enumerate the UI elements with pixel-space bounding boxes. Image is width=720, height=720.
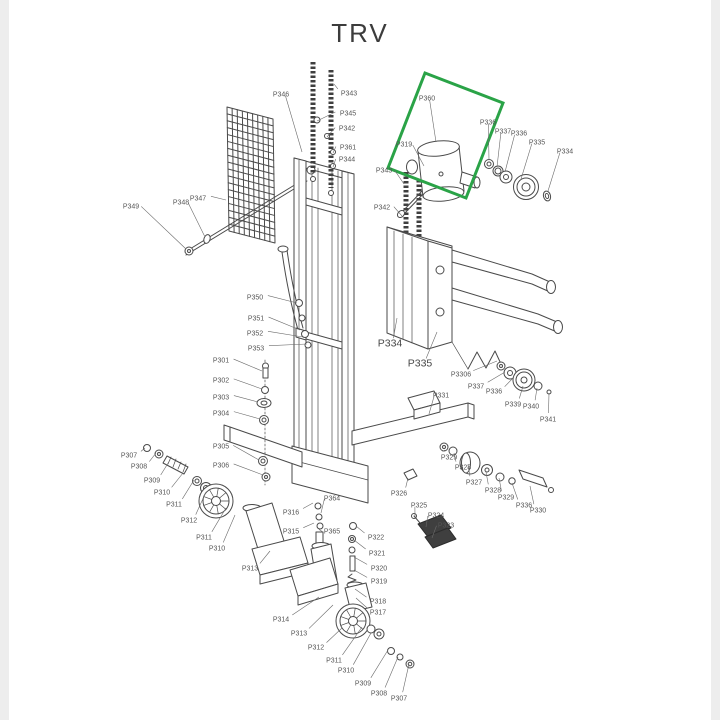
part-label: P308 [131,464,147,471]
part-label: P315 [283,529,299,536]
leader-line [303,503,313,508]
part-label: P336 [511,131,527,138]
part-label: P339 [505,402,521,409]
part-label: P336 [480,120,496,127]
part-label: P349 [123,204,139,211]
part-label: P323 [438,523,454,530]
leader-line [403,664,409,692]
part-label: P328 [485,488,501,495]
leader-line [354,557,367,564]
part-label: P347 [190,196,206,203]
leader-line [530,486,534,504]
part-label: P327 [466,480,482,487]
part-label: P310 [338,668,354,675]
leader-line [268,296,297,303]
exploded-parts-diagram: P343P345P342P361P344P346P347P348P349P343… [0,0,720,720]
part-label: P306 [213,463,229,470]
part-label: P325 [411,503,427,510]
part-label: P317 [370,610,386,617]
part-label: P312 [308,645,324,652]
leader-line [182,480,194,499]
part-label: P305 [213,444,229,451]
part-label: P319 [396,142,412,149]
part-label: P343 [341,91,357,98]
part-label: P361 [340,145,356,152]
leader-line [356,526,365,533]
part-label: P344 [339,157,355,164]
leader-line [141,206,186,249]
leader-line [285,96,302,152]
part-label: P360 [419,96,435,103]
part-label: P311 [166,502,182,509]
leader-line [430,100,436,142]
part-label: P307 [391,696,407,703]
part-label: P309 [355,681,371,688]
leader-line [548,153,560,191]
tie-rod [185,178,307,255]
leader-line [223,515,235,542]
leader-line [188,203,205,237]
part-label: P365 [324,529,340,536]
part-label: P320 [371,566,387,573]
part-label: P304 [213,411,229,418]
backrest-grid [227,107,275,243]
forks [452,250,563,369]
part-label: P303 [213,395,229,402]
steer-wheel-assembly [290,503,414,668]
leader-line [234,412,260,419]
part-label: P353 [248,346,264,353]
leader-line [303,523,314,528]
part-label: P364 [324,496,340,503]
leader-line [406,478,408,488]
part-label: P311 [196,535,212,542]
leader-line [371,650,388,678]
leader-line [172,473,183,487]
part-label: P302 [213,378,229,385]
part-label: P330 [530,508,546,515]
part-label: P342 [339,126,355,133]
part-label: P309 [144,478,160,485]
part-label: P336 [486,389,502,396]
fork-carriage [387,227,452,349]
part-label: P343 [376,168,392,175]
part-label: P331 [433,393,449,400]
part-label: P324 [428,513,444,520]
part-label: P341 [540,417,556,424]
part-label: P334 [557,149,573,156]
part-label: P351 [248,316,264,323]
part-label: P346 [273,92,289,99]
part-label: P308 [371,691,387,698]
part-label: P311 [326,658,342,665]
part-label: P335 [408,358,433,370]
part-label: P310 [154,490,170,497]
part-label: P335 [529,140,545,147]
leader-line [505,135,515,172]
mast-bolt-parts [257,360,271,485]
leader-line [234,359,262,371]
part-label: P326 [391,491,407,498]
part-label: P321 [369,551,385,558]
leader-line [488,372,505,382]
part-label: P301 [213,358,229,365]
leader-line [234,396,258,402]
part-label: P307 [121,453,137,460]
leader-line [234,464,263,475]
part-label: P313 [291,631,307,638]
leader-line [521,144,532,179]
leader-line [149,453,156,462]
leader-line [334,84,338,89]
part-label: P350 [247,295,263,302]
leader-line [488,124,489,160]
part-label: P310 [209,546,225,553]
part-label: P337 [468,384,484,391]
leader-line [354,570,367,577]
part-label: P345 [340,111,356,118]
leader-line [234,379,262,389]
leader-line [354,540,366,549]
part-label: P313 [242,566,258,573]
leader-line [385,657,398,687]
leader-line [497,133,501,167]
part-label: P3306 [451,372,471,379]
leader-line [473,361,497,371]
part-label: P329 [498,495,514,502]
leader-line [548,393,549,413]
part-label: P314 [273,617,289,624]
part-label: P348 [173,200,189,207]
leader-line [211,196,226,200]
part-label: P342 [374,205,390,212]
part-label: P340 [523,404,539,411]
part-label: P322 [368,535,384,542]
leader-line [326,628,342,643]
part-label: P319 [371,579,387,586]
part-label: P334 [378,338,403,350]
part-label: P316 [283,510,299,517]
part-label: P318 [370,599,386,606]
leader-line [309,605,333,628]
part-label: P337 [495,129,511,136]
part-label: P312 [181,518,197,525]
part-label: P352 [247,331,263,338]
